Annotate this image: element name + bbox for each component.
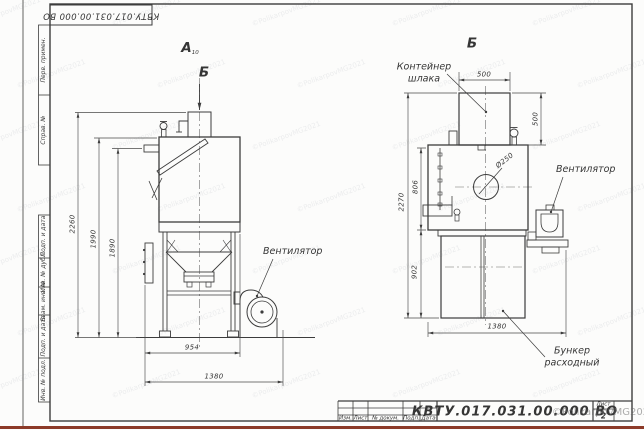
dim-a-inner-height: 1890 xyxy=(110,238,117,257)
title-block-col-list: Лист xyxy=(354,416,368,422)
margin-cell-podp-data-1: Подп. и дата xyxy=(41,216,47,257)
view-a-dimensions xyxy=(75,113,283,387)
margin-cell-sprav-n: Справ. № xyxy=(41,115,47,144)
margin-cell-inv-podl: Инв. № подл. xyxy=(41,359,47,400)
section-mark-b: Б xyxy=(199,66,209,80)
callout-bunker-line1: Бункер xyxy=(554,346,590,356)
margin-cell-perv-primen: Перв. примен. xyxy=(41,37,47,82)
callout-bunker-line2: расходный xyxy=(545,358,600,368)
dim-a-overall-height: 2260 xyxy=(70,214,77,233)
dim-b-container-width: 500 xyxy=(477,72,491,79)
drawing-sheet: ©PolikarpovMG2021©PolikarpovMG2021©Polik… xyxy=(0,0,644,430)
callout-container-line2: шлака xyxy=(408,74,440,84)
bottom-edge-line xyxy=(0,426,644,429)
dim-b-container-height: 500 xyxy=(533,112,540,126)
dim-a-body-width: 954 xyxy=(185,345,199,352)
view-a-title: А10 xyxy=(181,42,198,57)
view-b-title: Б xyxy=(467,37,477,51)
dim-b-overall-width: 1380 xyxy=(487,324,506,331)
copyright-watermark: ©PolikarpovMG2021 xyxy=(552,407,644,418)
dim-a-body-height: 1990 xyxy=(91,229,98,248)
title-block-col-izm: Изм. xyxy=(339,416,352,422)
fan-side-view xyxy=(234,290,277,337)
designation-stamp: КВТУ.017.031.00.000 ВО xyxy=(43,11,160,20)
title-block-col-ndokum: № докум. xyxy=(372,416,399,422)
dim-b-body-height: 806 xyxy=(413,180,420,194)
dim-a-overall-width: 1380 xyxy=(204,374,223,381)
view-a-drawing xyxy=(136,78,315,348)
view-a-title-subscript: 10 xyxy=(192,50,199,56)
fan-front-view xyxy=(527,205,568,253)
view-b-drawing xyxy=(423,74,568,357)
dim-b-overall-height: 2270 xyxy=(399,192,406,211)
sheet-frame xyxy=(23,0,632,426)
callout-fan-b: Вентилятор xyxy=(556,165,615,175)
margin-cell-podp-data-2: Подп. и дата xyxy=(41,316,47,357)
callout-fan-a: Вентилятор xyxy=(263,247,322,257)
view-a-title-letter: А xyxy=(181,40,191,56)
dim-b-bunker-height: 902 xyxy=(412,265,419,279)
callout-container-line1: Контейнер xyxy=(397,62,451,72)
